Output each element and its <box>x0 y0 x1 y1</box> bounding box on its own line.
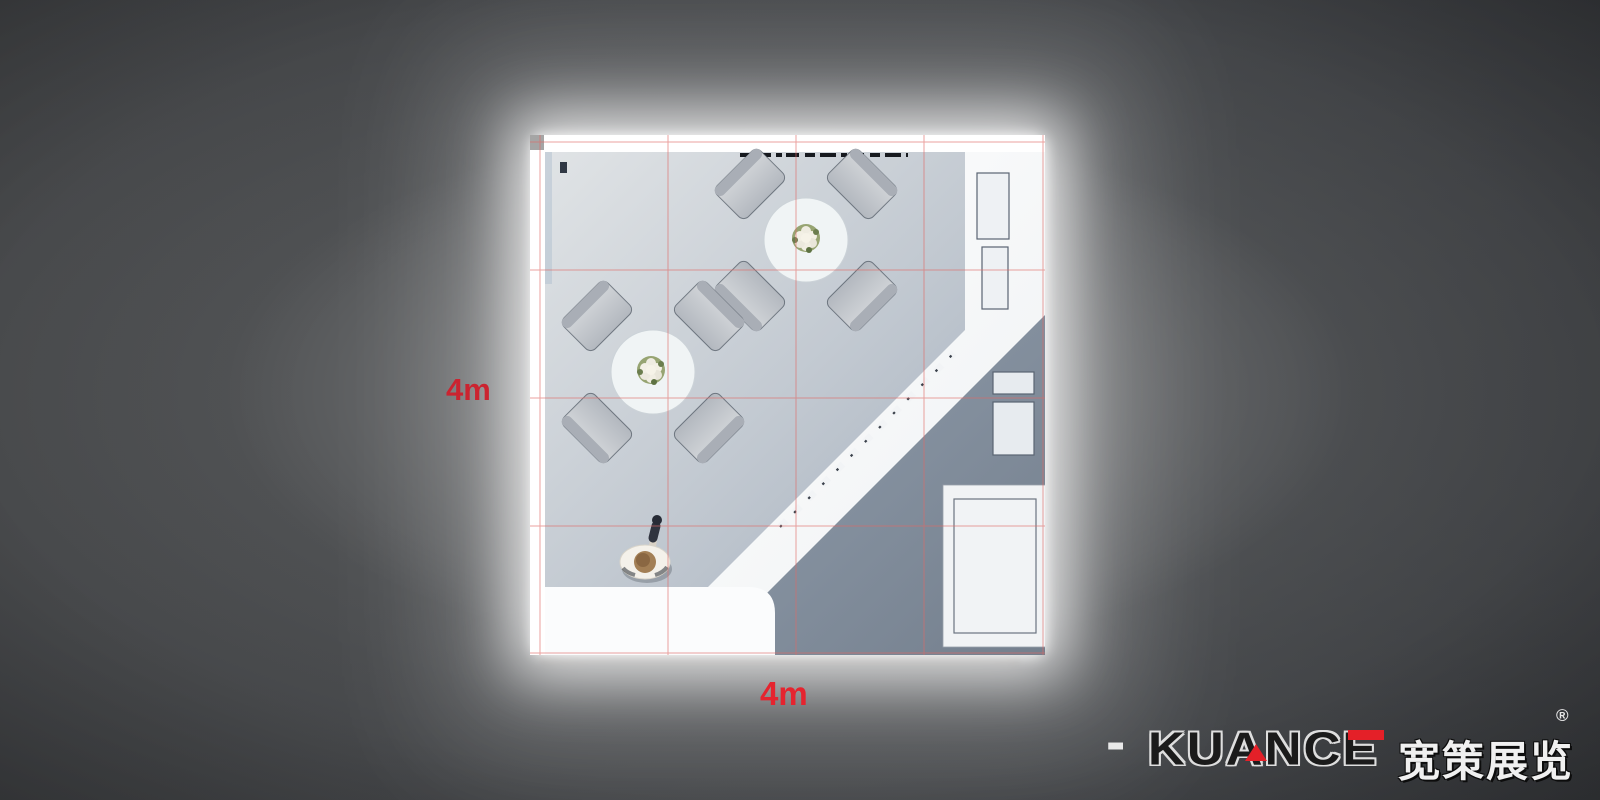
wall-fixture-mark <box>560 162 567 173</box>
booth-top-view <box>530 135 1045 655</box>
brand-logo: - KUANCE 宽策展览 ® <box>1098 698 1598 778</box>
logo-chinese-text: 宽策展览 <box>1398 728 1574 789</box>
left-wall-reflection <box>545 152 552 284</box>
render-stage: 4m 4m - KUANCE 宽策展览 ® <box>0 0 1600 800</box>
reception-desk <box>545 587 775 655</box>
logo-e-red-bar <box>1348 730 1384 740</box>
dimension-label-bottom: 4m <box>760 677 808 710</box>
counter-cabinet-1 <box>977 173 1009 239</box>
dimension-label-left: 4m <box>446 374 491 405</box>
logo-a-red-triangle <box>1245 744 1267 761</box>
top-wall <box>542 135 1045 152</box>
booth-bottom-shadow <box>540 655 1020 665</box>
counter-cabinet-2 <box>982 247 1008 309</box>
left-wall <box>530 148 545 655</box>
back-cabinet-2 <box>993 402 1034 455</box>
registered-trademark-icon: ® <box>1556 706 1569 726</box>
back-cabinet-1 <box>993 372 1034 394</box>
storage-box-roof <box>943 485 1045 647</box>
